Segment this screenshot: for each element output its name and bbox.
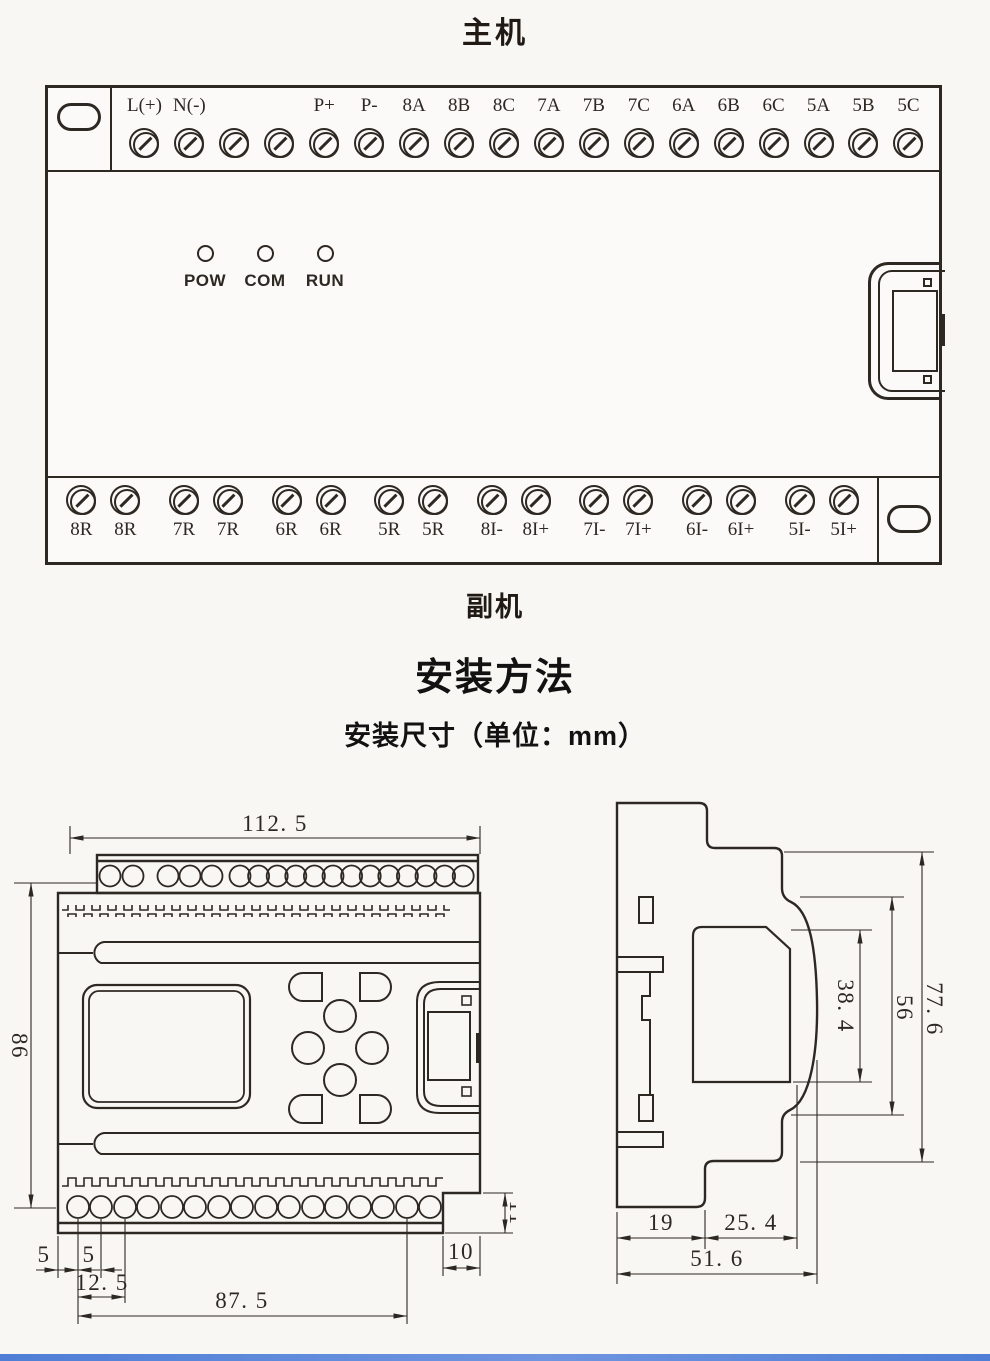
front-view-port [417,982,481,1113]
dim-pair-pitch: 12. 5 [75,1270,129,1295]
terminal-hole [90,1196,112,1218]
screw-icon [521,485,551,515]
led-row: POWCOMRUN [182,245,348,291]
expansion-port-pin-icon [923,278,932,287]
keypad-button [289,1095,322,1123]
screw-icon [477,485,507,515]
dim-corner-step-height: 11 [505,1200,516,1225]
terminal-holes-bottom [67,1196,441,1218]
dim-overall-width: 112. 5 [242,811,308,836]
bottom-accent-bar [0,1354,990,1361]
keypad-button [360,973,391,1001]
left-corner-box [48,88,112,170]
terminal-slot: 7R [166,485,202,562]
terminal-slot: 8I+ [518,485,554,562]
terminal-slot: 6B [706,88,751,170]
din-rail-notch [642,972,650,1095]
terminal-slot: 6R [269,485,305,562]
expansion-port-socket [892,290,938,372]
side-view-drawing: 38. 4 56 77. 6 19 25. 4 51. 6 [585,792,955,1337]
screw-icon [489,128,519,158]
keypad [289,973,391,1123]
mounting-slot-icon [57,103,101,131]
led-indicator-icon [257,245,274,262]
led-label: RUN [306,271,344,291]
terminal-label: 7I- [583,515,605,541]
terminal-label: P- [361,88,378,118]
vent-serration-top [62,905,450,917]
terminal-label: 6R [319,515,341,541]
screw-icon [726,485,756,515]
section-heading-installation: 安装方法 [0,646,990,701]
terminal-pair: 7I-7I+ [565,485,668,562]
din-rail-tab [617,957,663,972]
terminal-hole [123,866,144,887]
terminal-slot: N(-) [167,88,212,170]
terminal-label: 8B [448,88,470,118]
terminal-slot: 5C [886,88,931,170]
screw-icon [316,485,346,515]
bottom-terminal-strip: 8R8R7R7R6R6R5R5R8I-8I+7I-7I+6I-6I+5I-5I+ [48,476,939,562]
side-view-dimensions: 38. 4 56 77. 6 19 25. 4 51. 6 [617,852,947,1284]
side-clip-slot [639,897,653,923]
terminal-hole [278,1196,300,1218]
terminal-label: 5I+ [830,515,857,541]
display-window [83,985,250,1108]
terminal-slot: L(+) [122,88,167,170]
screw-icon [129,128,159,158]
terminal-slot: 7R [210,485,246,562]
terminal-label: 8R [114,515,136,541]
terminal-hole [161,1196,183,1218]
dim-front-depth: 25. 4 [724,1210,778,1235]
terminal-slot: 5I- [782,485,818,562]
terminal-hole [396,1196,418,1218]
panel-groove-top [94,942,480,963]
side-terminal-block [693,927,790,1082]
terminal-hole [180,866,201,887]
vent-serration-bottom [62,1176,443,1188]
terminal-label: 7A [537,88,560,118]
keypad-button-right [356,1032,388,1064]
screw-icon [264,128,294,158]
page-title-main-unit: 主机 [0,8,990,52]
dim-hole-gap: 5 [83,1242,96,1267]
right-corner-box [877,478,939,562]
terminal-hole [114,1196,136,1218]
led-unit: COM [242,245,288,291]
terminal-pair: 6I-6I+ [668,485,771,562]
terminal-hole [202,866,223,887]
dim-hole-span: 87. 5 [215,1288,269,1313]
side-clip-slot [639,1095,653,1121]
terminal-label: 5R [378,515,400,541]
terminal-hole [67,1196,89,1218]
terminal-hole [137,1196,159,1218]
terminal-slot: 8A [392,88,437,170]
terminal-hole [231,1196,253,1218]
main-unit-diagram: L(+)N(-)P+P-8A8B8C7A7B7C6A6B6C5A5B5C POW… [45,85,942,565]
expansion-port [868,262,942,400]
terminal-label: 8C [493,88,515,118]
terminal-slot [212,88,257,170]
terminal-label: 8I+ [523,515,550,541]
screw-icon [418,485,448,515]
dim-corner-step-width: 10 [448,1239,474,1264]
screw-icon [848,128,878,158]
side-view-outline [617,803,817,1207]
screw-icon [785,485,815,515]
keypad-button [289,973,322,1001]
screw-icon [893,128,923,158]
expansion-port-pin-icon [923,375,932,384]
screw-icon [714,128,744,158]
screw-icon [579,128,609,158]
bottom-terminal-row: 8R8R7R7R6R6R5R5R8I-8I+7I-7I+6I-6I+5I-5I+ [48,478,877,562]
terminal-pair: 8I-8I+ [463,485,566,562]
terminal-pair: 8R8R [52,485,155,562]
screw-icon [444,128,474,158]
screw-icon [624,128,654,158]
dim-overall-height: 77. 6 [922,982,947,1036]
terminal-label: 7B [583,88,605,118]
terminal-label: 8A [402,88,425,118]
screw-icon [309,128,339,158]
dim-front-height: 56 [892,995,917,1021]
screw-icon [110,485,140,515]
top-terminal-row: L(+)N(-)P+P-8A8B8C7A7B7C6A6B6C5A5B5C [112,88,939,170]
led-label: POW [184,271,226,291]
led-indicator-icon [317,245,334,262]
terminal-hole [419,1196,441,1218]
terminal-label: 7I+ [625,515,652,541]
page-title-secondary-unit: 副机 [0,585,990,624]
terminal-label: N(-) [173,88,206,118]
terminal-hole [372,1196,394,1218]
terminal-label: 7C [628,88,650,118]
terminal-label: 5B [852,88,874,118]
terminal-hole [208,1196,230,1218]
terminal-label: 6B [718,88,740,118]
keypad-button [360,1095,391,1123]
screw-icon [579,485,609,515]
keypad-button-left [292,1032,324,1064]
terminal-label: L(+) [127,88,162,118]
terminal-hole [255,1196,277,1218]
dim-back-depth: 19 [648,1210,674,1235]
terminal-slot: 5R [415,485,451,562]
screw-icon [759,128,789,158]
terminal-pair: 5I-5I+ [770,485,873,562]
screw-icon [174,128,204,158]
terminal-label: 8R [70,515,92,541]
terminal-label: 5A [807,88,830,118]
terminal-slot: 6A [661,88,706,170]
terminal-hole [325,1196,347,1218]
top-terminal-strip: L(+)N(-)P+P-8A8B8C7A7B7C6A6B6C5A5B5C [48,88,939,172]
terminal-slot: 7A [526,88,571,170]
terminal-slot: 6R [313,485,349,562]
terminal-label: 5C [897,88,919,118]
terminal-slot: P- [347,88,392,170]
terminal-slot: 5R [371,485,407,562]
screw-icon [669,128,699,158]
dim-overall-depth: 51. 6 [690,1246,744,1271]
terminal-pair: 6R6R [257,485,360,562]
terminal-hole [184,1196,206,1218]
screw-icon [399,128,429,158]
terminal-slot: 8R [107,485,143,562]
terminal-label: P+ [314,88,335,118]
panel-groove-bottom [94,1133,480,1154]
led-unit: RUN [302,245,348,291]
section-subheading-dimensions: 安装尺寸（单位：mm） [0,714,990,753]
terminal-slot: 6I+ [723,485,759,562]
screw-icon [169,485,199,515]
terminal-slot: 7C [616,88,661,170]
keypad-button-down [324,1064,356,1096]
terminal-label: 6A [672,88,695,118]
screw-icon [374,485,404,515]
expansion-port-latch-icon [940,314,945,346]
keypad-button-up [324,1000,356,1032]
terminal-label: 6I- [686,515,708,541]
terminal-label: 8I- [481,515,503,541]
terminal-hole [158,866,179,887]
screw-icon [354,128,384,158]
terminal-hole [349,1196,371,1218]
terminal-label: 7R [173,515,195,541]
terminal-label: 6C [763,88,785,118]
terminal-slot: 7I- [576,485,612,562]
screw-icon [66,485,96,515]
device-front-panel: POWCOMRUN [48,172,939,476]
screw-icon [829,485,859,515]
front-view-drawing: 112. 5 86 5 5 12. 5 87. 5 10 11 [6,792,516,1337]
terminal-slot: 8C [482,88,527,170]
terminal-slot: 8R [63,485,99,562]
terminal-hole [100,866,121,887]
dim-overall-height: 86 [7,1033,32,1059]
screw-icon [534,128,564,158]
terminal-pair: 7R7R [155,485,258,562]
terminal-slot: 8I- [474,485,510,562]
terminal-slot: 8B [437,88,482,170]
terminal-label: 7R [217,515,239,541]
din-rail-tab [617,1132,663,1147]
screw-icon [272,485,302,515]
terminal-slot: 7I+ [620,485,656,562]
terminal-slot: 5B [841,88,886,170]
screw-icon [213,485,243,515]
dim-panel-height: 38. 4 [833,979,858,1033]
screw-icon [682,485,712,515]
terminal-label: 5R [422,515,444,541]
led-indicator-icon [197,245,214,262]
terminal-pair: 5R5R [360,485,463,562]
terminal-label: 6I+ [728,515,755,541]
mounting-slot-icon [887,505,931,533]
led-unit: POW [182,245,228,291]
terminal-label: 6R [275,515,297,541]
terminal-slot: 7B [571,88,616,170]
terminal-slot: 6C [751,88,796,170]
terminal-holes-top [100,866,474,887]
terminal-slot [257,88,302,170]
terminal-slot: 5A [796,88,841,170]
terminal-slot: 6I- [679,485,715,562]
screw-icon [623,485,653,515]
terminal-slot: P+ [302,88,347,170]
screw-icon [219,128,249,158]
led-label: COM [244,271,285,291]
terminal-hole [302,1196,324,1218]
terminal-label: 5I- [789,515,811,541]
dim-edge-margin: 5 [38,1242,51,1267]
terminal-slot: 5I+ [826,485,862,562]
screw-icon [804,128,834,158]
